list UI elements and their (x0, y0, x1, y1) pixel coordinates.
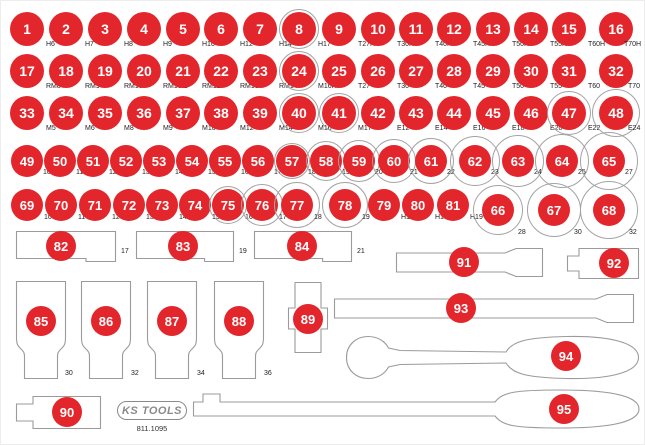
marker-19: 19 (88, 54, 122, 88)
marker-2: 2 (49, 12, 83, 46)
marker-26: 26 (361, 54, 395, 88)
brand-logo-text: KS TOOLS (122, 405, 182, 417)
marker-81: 81 (437, 189, 469, 221)
marker-85: 85 (26, 306, 56, 336)
marker-50: 50 (44, 145, 76, 177)
size-label-4: H9 (163, 41, 172, 48)
size-label-15: T60H (588, 41, 605, 48)
marker-1: 1 (10, 12, 44, 46)
size-label-68: 32 (629, 229, 637, 236)
marker-67: 67 (538, 194, 570, 226)
size-label-78: 19 (362, 214, 370, 221)
marker-8: 8 (282, 12, 316, 46)
marker-38: 38 (204, 96, 238, 130)
marker-9: 9 (322, 12, 356, 46)
marker-21: 21 (166, 54, 200, 88)
tray-94 (344, 335, 641, 380)
marker-45: 45 (476, 96, 510, 130)
marker-56: 56 (242, 145, 274, 177)
marker-53: 53 (143, 145, 175, 177)
marker-79: 79 (368, 189, 400, 221)
marker-15: 15 (552, 12, 586, 46)
size-label-2: H7 (85, 41, 94, 48)
size-label-82: 17 (121, 248, 129, 255)
marker-47: 47 (552, 96, 586, 130)
marker-89: 89 (293, 304, 323, 334)
size-label-1: H6 (46, 41, 55, 48)
size-label-77: 18 (314, 214, 322, 221)
marker-59: 59 (343, 145, 375, 177)
brand-logo: KS TOOLS (117, 401, 187, 420)
marker-5: 5 (166, 12, 200, 46)
size-label-31: T60 (588, 83, 600, 90)
marker-43: 43 (399, 96, 433, 130)
marker-65: 65 (593, 145, 625, 177)
size-label-86: 32 (131, 370, 139, 377)
marker-30: 30 (514, 54, 548, 88)
marker-29: 29 (476, 54, 510, 88)
marker-27: 27 (399, 54, 433, 88)
marker-34: 34 (49, 96, 83, 130)
marker-13: 13 (476, 12, 510, 46)
marker-60: 60 (378, 145, 410, 177)
marker-92: 92 (599, 248, 629, 278)
marker-36: 36 (127, 96, 161, 130)
size-label-32: T70 (628, 83, 640, 90)
marker-44: 44 (437, 96, 471, 130)
size-label-16: T70H (624, 41, 641, 48)
marker-46: 46 (514, 96, 548, 130)
marker-88: 88 (224, 306, 254, 336)
tray-outline-93 (334, 294, 634, 323)
marker-12: 12 (437, 12, 471, 46)
size-label-65: 27 (625, 169, 633, 176)
marker-64: 64 (546, 145, 578, 177)
marker-72: 72 (113, 189, 145, 221)
marker-37: 37 (166, 96, 200, 130)
tool-inlay-diagram: KS TOOLS 811.1095 1H62H73H84H95H106H127H… (0, 0, 645, 445)
marker-61: 61 (415, 145, 447, 177)
marker-11: 11 (399, 12, 433, 46)
marker-6: 6 (204, 12, 238, 46)
marker-73: 73 (146, 189, 178, 221)
marker-33: 33 (10, 96, 44, 130)
marker-31: 31 (552, 54, 586, 88)
marker-49: 49 (11, 145, 43, 177)
marker-52: 52 (110, 145, 142, 177)
size-label-48: E24 (628, 125, 640, 132)
marker-66: 66 (482, 194, 514, 226)
marker-71: 71 (79, 189, 111, 221)
marker-22: 22 (204, 54, 238, 88)
marker-3: 3 (88, 12, 122, 46)
marker-7: 7 (243, 12, 277, 46)
marker-4: 4 (127, 12, 161, 46)
marker-83: 83 (168, 231, 198, 261)
marker-77: 77 (281, 189, 313, 221)
marker-82: 82 (46, 231, 76, 261)
marker-63: 63 (502, 145, 534, 177)
marker-68: 68 (593, 194, 625, 226)
marker-10: 10 (361, 12, 395, 46)
size-label-87: 34 (197, 370, 205, 377)
marker-80: 80 (402, 189, 434, 221)
marker-84: 84 (287, 231, 317, 261)
marker-90: 90 (52, 397, 82, 427)
marker-20: 20 (127, 54, 161, 88)
tray-outline-94 (344, 335, 641, 380)
marker-62: 62 (459, 145, 491, 177)
marker-39: 39 (243, 96, 277, 130)
marker-75: 75 (212, 189, 244, 221)
marker-54: 54 (176, 145, 208, 177)
marker-51: 51 (77, 145, 109, 177)
size-label-84: 21 (357, 248, 365, 255)
marker-28: 28 (437, 54, 471, 88)
marker-95: 95 (549, 394, 579, 424)
marker-35: 35 (88, 96, 122, 130)
size-label-83: 19 (239, 248, 247, 255)
marker-86: 86 (91, 306, 121, 336)
size-label-67: 30 (574, 229, 582, 236)
marker-93: 93 (446, 293, 476, 323)
marker-25: 25 (322, 54, 356, 88)
marker-42: 42 (361, 96, 395, 130)
marker-91: 91 (449, 247, 479, 277)
marker-70: 70 (45, 189, 77, 221)
marker-41: 41 (322, 96, 356, 130)
marker-23: 23 (243, 54, 277, 88)
marker-17: 17 (10, 54, 44, 88)
marker-74: 74 (179, 189, 211, 221)
size-label-85: 30 (65, 370, 73, 377)
size-label-88: 36 (264, 370, 272, 377)
part-number: 811.1095 (117, 424, 187, 433)
marker-87: 87 (157, 306, 187, 336)
marker-94: 94 (551, 341, 581, 371)
marker-18: 18 (49, 54, 83, 88)
marker-55: 55 (209, 145, 241, 177)
size-label-66: 28 (518, 229, 526, 236)
size-label-3: H8 (124, 41, 133, 48)
marker-78: 78 (329, 189, 361, 221)
marker-14: 14 (514, 12, 548, 46)
marker-40: 40 (282, 96, 316, 130)
tray-93 (334, 294, 634, 323)
marker-57: 57 (276, 145, 308, 177)
marker-24: 24 (282, 54, 316, 88)
marker-69: 69 (11, 189, 43, 221)
